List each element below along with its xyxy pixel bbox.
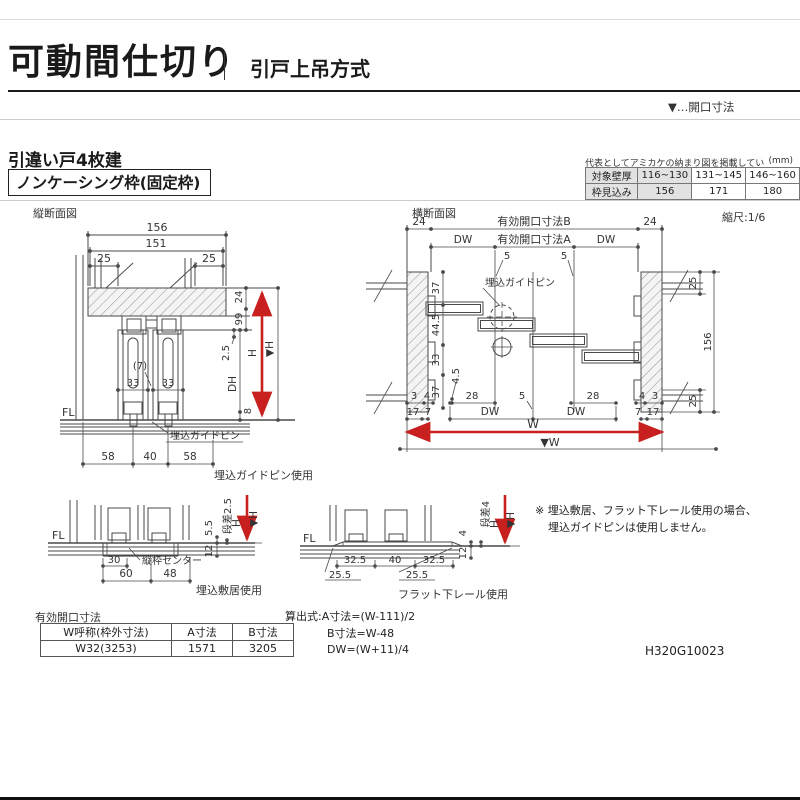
vertical-section-drawing: 156 151 25 25 24 99 2.5 DH H ▼H 8 FL (7)…: [60, 221, 295, 468]
formula-line1: 算出式:A寸法=(W-111)/2: [285, 609, 415, 626]
vs-fl-label: FL: [62, 406, 75, 419]
cs-dim-28-right: 28: [587, 391, 600, 402]
formula-line2: B寸法=W-48: [285, 626, 415, 643]
vs-dim-8: 8: [243, 408, 254, 414]
cs-dim-17-left: 17: [407, 407, 420, 418]
sd-dansa-label: 段差2.5: [221, 498, 234, 534]
cs-dim-7-right: 7: [635, 407, 641, 418]
note-line1: ※ 埋込敷居、フラット下レール使用の場合、: [535, 502, 757, 519]
rd-dim-40: 40: [389, 555, 402, 566]
rd-dim-h-marked: ▼H: [505, 512, 517, 528]
document-number: H320G10023: [645, 644, 724, 658]
cs-dim-25-bottom: 25: [688, 395, 699, 408]
vs-dim-58a: 58: [101, 451, 114, 463]
cs-dim-37-bottom: 37: [431, 386, 442, 399]
vs-dim-dh: DH: [227, 376, 239, 392]
cs-opening-a-label: 有効開口寸法A: [497, 232, 571, 246]
vs-dim-99: 99: [234, 313, 245, 326]
cs-dim-24-left: 24: [412, 216, 426, 228]
sd-center-label: 縦枠センター: [142, 554, 202, 567]
vs-dim-2-5: 2.5: [221, 345, 232, 361]
cs-dim-156: 156: [703, 332, 714, 351]
catalog-page: 可動間仕切り 引戸上吊方式 ▼…開口寸法 引違い戸4枚建 ノンケーシング枠(固定…: [0, 0, 800, 800]
rd-dim-32-5-right: 32.5: [423, 555, 445, 566]
flat-rail-detail-drawing: FL 段差4 4 12 H ▼H 32.5 40 32.5 25.5 25.5: [300, 495, 520, 581]
vs-dim-h-marked: ▼H: [264, 341, 276, 357]
recessed-sill-detail-drawing: FL 段差2.5 5.5 12 H ▼H 30 縦枠センター 60 48: [48, 495, 262, 584]
vs-dim-33a: 33: [127, 378, 140, 389]
vs-dim-7: (7): [133, 361, 147, 372]
opening-c2: 1571: [172, 641, 233, 657]
sd-dim-48: 48: [163, 568, 176, 580]
recessed-sill-caption: 埋込敷居使用: [196, 582, 262, 598]
cs-dim-w: W: [527, 417, 539, 431]
technical-drawings: 156 151 25 25 24 99 2.5 DH H ▼H 8 FL (7)…: [0, 0, 800, 800]
vs-dim-58b: 58: [183, 451, 196, 463]
sd-dim-30: 30: [108, 555, 121, 566]
flat-rail-caption: フラット下レール使用: [398, 586, 508, 602]
cs-dim-4-right: 4: [639, 391, 645, 402]
cs-dim-5-center: 5: [519, 391, 525, 402]
cs-dim-3-right: 3: [652, 391, 658, 402]
rd-dim-25-5-right: 25.5: [406, 570, 428, 581]
sd-dim-5-5: 5.5: [204, 520, 215, 536]
cs-dim-3-left: 3: [411, 391, 417, 402]
cs-dim-dw-bottom-right: DW: [567, 406, 586, 418]
vs-dim-151: 151: [146, 237, 167, 250]
cs-dim-17-right: 17: [647, 407, 660, 418]
rd-dim-32-5-left: 32.5: [344, 555, 366, 566]
opening-h2: A寸法: [172, 624, 233, 641]
cs-dim-44-5: 44.5: [431, 314, 442, 336]
formula-line3: DW=(W+11)/4: [285, 642, 415, 659]
table-row: W32(3253) 1571 3205: [41, 641, 294, 657]
cs-dim-33: 33: [431, 354, 442, 367]
opening-dimension-table: W呼称(枠外寸法) A寸法 B寸法 W32(3253) 1571 3205: [40, 623, 294, 657]
vs-dim-24: 24: [234, 291, 245, 304]
cs-pin-label: 埋込ガイドピン: [485, 277, 555, 289]
cs-dim-24-right: 24: [643, 216, 657, 228]
note-line2: 埋込ガイドピンは使用しません。: [535, 519, 757, 536]
table-header-row: W呼称(枠外寸法) A寸法 B寸法: [41, 624, 294, 641]
rd-dim-25-5-left: 25.5: [329, 570, 351, 581]
vs-dim-40: 40: [143, 451, 156, 463]
cs-dim-37-top: 37: [431, 282, 442, 295]
cs-opening-b-label: 有効開口寸法B: [497, 214, 571, 228]
opening-c1: W32(3253): [41, 641, 172, 657]
cs-dim-dw-left: DW: [454, 234, 473, 246]
cs-dim-7-left: 7: [425, 407, 431, 418]
sd-dim-60: 60: [119, 568, 132, 580]
sill-pin-caption: 埋込ガイドピン使用: [214, 467, 313, 483]
sd-dim-12: 12: [204, 545, 215, 558]
cross-section-drawing: 24 有効開口寸法B 24 DW 有効開口寸法A DW 5 5 埋込ガイドピン …: [366, 214, 720, 452]
opening-h1: W呼称(枠外寸法): [41, 624, 172, 641]
vs-pin-label: 埋込ガイドピン: [170, 430, 240, 442]
cs-dim-4-5: 4.5: [451, 368, 462, 384]
cs-dim-w-marked: ▼W: [540, 436, 559, 449]
cs-dim-dw-right: DW: [597, 234, 616, 246]
rd-dim-12: 12: [458, 547, 469, 560]
vs-dim-25-left: 25: [97, 252, 111, 265]
cs-dim-4-left: 4: [424, 391, 430, 402]
sd-dim-h: H: [231, 519, 243, 527]
rd-dim-h: H: [489, 520, 501, 528]
usage-note: ※ 埋込敷居、フラット下レール使用の場合、 埋込ガイドピンは使用しません。: [535, 502, 757, 536]
vs-dim-h: H: [247, 349, 259, 357]
vs-dim-156: 156: [147, 221, 168, 234]
vs-dim-33b: 33: [162, 378, 175, 389]
sd-dim-h-marked: ▼H: [248, 511, 260, 527]
cs-dim-25-top: 25: [688, 277, 699, 290]
rd-fl-label: FL: [303, 532, 316, 545]
vs-dim-25-right: 25: [202, 252, 216, 265]
cs-dim-5a: 5: [504, 251, 510, 262]
cs-dim-dw-bottom-left: DW: [481, 406, 500, 418]
calculation-formulas: 算出式:A寸法=(W-111)/2 B寸法=W-48 DW=(W+11)/4: [285, 609, 415, 659]
cs-dim-5b: 5: [561, 251, 567, 262]
cs-dim-28-left: 28: [466, 391, 479, 402]
rd-dim-4: 4: [458, 530, 469, 536]
sd-fl-label: FL: [52, 529, 65, 542]
